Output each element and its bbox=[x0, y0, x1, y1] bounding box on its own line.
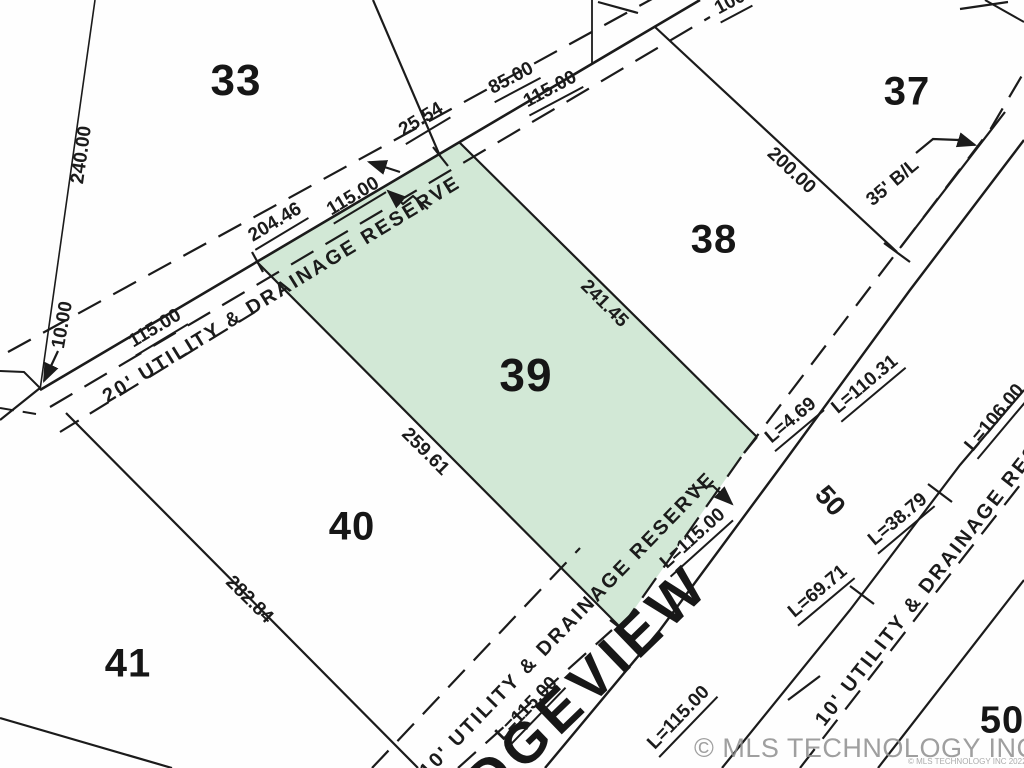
lot-number-33: 33 bbox=[211, 56, 262, 106]
dimension-label-13: 282.84 bbox=[221, 572, 278, 629]
lot-number-37: 37 bbox=[884, 70, 931, 115]
dimension-label-12: 259.61 bbox=[397, 424, 454, 481]
dimension-label-18: L=69.71 bbox=[783, 560, 856, 627]
lot-number-50: 50 bbox=[980, 700, 1024, 743]
dimension-label-11: 241.45 bbox=[576, 276, 633, 333]
dimension-label-9: 200.00 bbox=[762, 143, 820, 199]
dimension-label-1: 10.00 bbox=[48, 300, 78, 351]
dimension-label-8: 100 bbox=[709, 0, 752, 23]
dimension-label-4: 115.00 bbox=[321, 172, 386, 225]
dimension-label-16: L=106.00 bbox=[959, 378, 1024, 459]
lot-number-40: 40 bbox=[329, 505, 376, 550]
dimension-label-14: L=4.69 bbox=[760, 392, 825, 452]
lot-number-38: 38 bbox=[691, 218, 738, 263]
lot-number-41: 41 bbox=[105, 642, 152, 687]
dimension-label-0: 240.00 bbox=[67, 125, 97, 186]
road-width-label: 50 bbox=[808, 479, 851, 522]
dimension-label-10: 35' B/L bbox=[862, 155, 923, 211]
plat-labels: RIDGEVIEW 50 © MLS TECHNOLOGY INC 2025 ©… bbox=[0, 0, 1024, 768]
dimension-label-15: L=110.31 bbox=[826, 349, 906, 422]
copyright-small-text: © MLS TECHNOLOGY INC 2022 bbox=[908, 757, 1024, 766]
lot-number-39: 39 bbox=[499, 348, 552, 402]
dimension-label-17: L=38.79 bbox=[863, 488, 936, 555]
plat-map: RIDGEVIEW 50 © MLS TECHNOLOGY INC 2025 ©… bbox=[0, 0, 1024, 768]
dimension-label-2: 204.46 bbox=[243, 197, 309, 250]
dimension-label-5: 25.54 bbox=[393, 97, 450, 145]
